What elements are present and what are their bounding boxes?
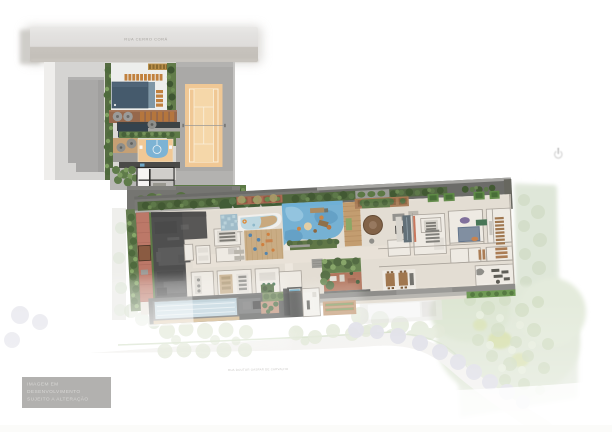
- svg-text:IMAGEM EM: IMAGEM EM: [27, 382, 59, 388]
- svg-text:SUJEITO A ALTERAÇÃO: SUJEITO A ALTERAÇÃO: [27, 396, 89, 403]
- svg-text:RUA CERRO CORÁ: RUA CERRO CORÁ: [124, 37, 167, 42]
- svg-text:DESENVOLVIMENTO: DESENVOLVIMENTO: [27, 389, 81, 395]
